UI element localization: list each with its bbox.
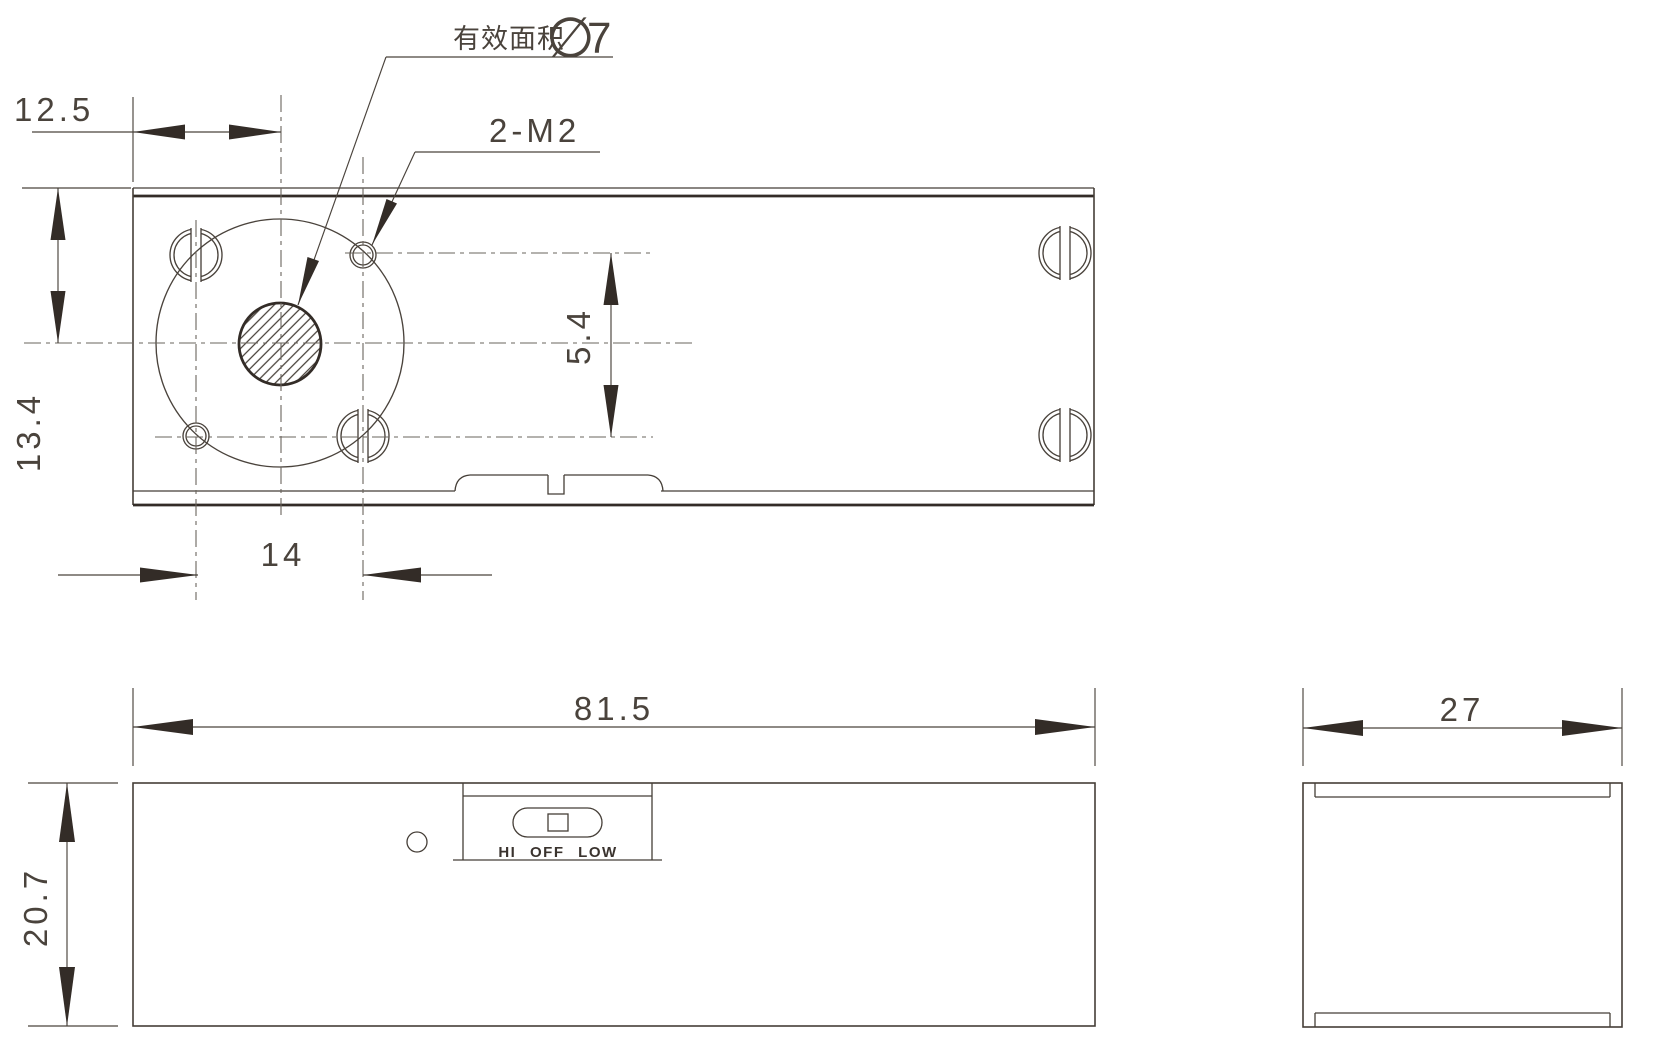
diameter-value: 7 [587,14,611,63]
switch-knob [548,814,568,831]
leader-thread-callout [372,152,600,245]
screw-head [1039,408,1091,463]
dim-body-height-text: 20.7 [17,867,54,947]
dim-hole-row-span-text: 5.4 [560,307,597,365]
top-view-switch-notch [455,475,663,494]
three-view-drawing: 12.5 13.4 14 5.4 81.5 20.7 27 2-M2 有效面积 … [0,0,1658,1038]
dim-top-offset-text: 13.4 [10,392,47,472]
leader-effective-area [298,57,613,305]
screw-head [1039,226,1091,281]
dim-body-depth-text: 27 [1440,691,1485,728]
dim-body-width-text: 81.5 [574,690,654,727]
slide-switch [513,808,602,837]
switch-label: HI OFF LOW [498,844,617,861]
side-view-outline [1303,783,1622,1027]
dim-left-offset-text: 12.5 [14,91,94,128]
effective-area-port [239,303,321,385]
dim-hole-row-span [604,253,619,437]
drawing-canvas: 12.5 13.4 14 5.4 81.5 20.7 27 2-M2 有效面积 … [0,0,1658,1038]
front-pilot-hole [407,832,427,852]
dim-hole-spacing-text: 14 [261,536,306,573]
thread-callout-text: 2-M2 [489,112,580,149]
front-view-outline [133,783,1095,1026]
dim-top-offset [22,188,131,343]
